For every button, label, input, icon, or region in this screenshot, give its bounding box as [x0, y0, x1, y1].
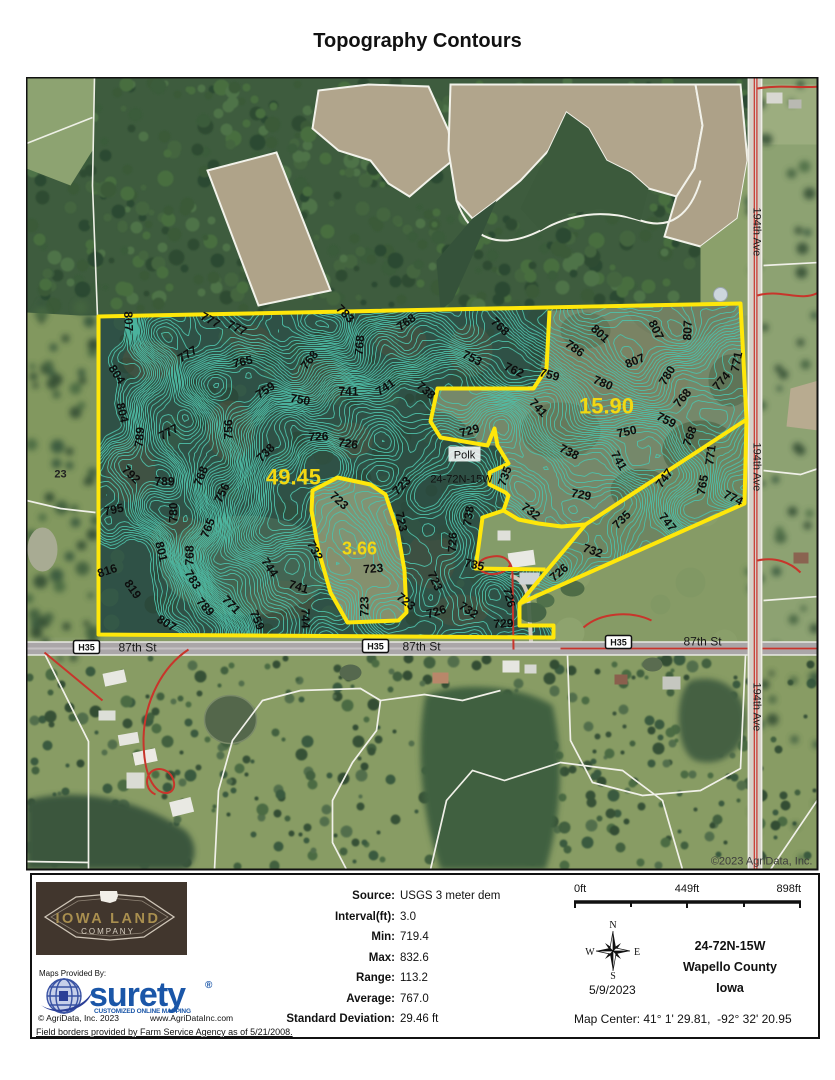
svg-text:771: 771	[702, 443, 718, 465]
svg-text:789: 789	[154, 474, 174, 488]
svg-text:726: 726	[337, 435, 359, 452]
svg-text:23: 23	[54, 468, 66, 480]
svg-text:H35: H35	[78, 642, 95, 652]
svg-text:789: 789	[131, 426, 147, 447]
svg-text:S: S	[610, 971, 616, 980]
svg-text:768: 768	[182, 544, 196, 565]
svg-text:744: 744	[298, 608, 312, 629]
svg-text:726: 726	[308, 429, 329, 444]
svg-text:729: 729	[493, 616, 514, 631]
svg-text:3.66: 3.66	[341, 538, 376, 558]
svg-text:0ft: 0ft	[574, 883, 586, 895]
svg-text:741: 741	[338, 384, 358, 398]
svg-text:194th Ave: 194th Ave	[750, 682, 762, 731]
svg-text:H35: H35	[367, 641, 384, 651]
svg-text:807: 807	[121, 311, 136, 332]
svg-text:W: W	[585, 947, 595, 958]
svg-text:723: 723	[362, 560, 383, 575]
svg-text:780: 780	[166, 502, 180, 522]
svg-text:24-72N-15W: 24-72N-15W	[430, 473, 493, 485]
svg-text:449ft: 449ft	[675, 883, 699, 895]
svg-text:N: N	[609, 920, 616, 931]
svg-text:H35: H35	[610, 637, 627, 647]
svg-text:Polk: Polk	[453, 449, 475, 461]
svg-text:807: 807	[680, 319, 695, 340]
svg-text:87th St: 87th St	[118, 640, 157, 654]
svg-text:194th Ave: 194th Ave	[750, 207, 762, 256]
svg-text:723: 723	[357, 596, 371, 616]
svg-text:194th Ave: 194th Ave	[750, 442, 762, 491]
svg-text:15.90: 15.90	[578, 393, 633, 418]
svg-text:898ft: 898ft	[777, 883, 801, 895]
svg-text:49.45: 49.45	[265, 464, 320, 489]
svg-text:E: E	[634, 947, 640, 958]
svg-text:IOWA LAND: IOWA LAND	[56, 911, 161, 927]
svg-text:87th St: 87th St	[683, 634, 722, 648]
svg-text:726: 726	[444, 531, 459, 552]
svg-text:87th St: 87th St	[402, 639, 441, 653]
svg-text:COMPANY: COMPANY	[81, 927, 135, 936]
svg-text:768: 768	[351, 334, 367, 355]
svg-text:756: 756	[221, 419, 235, 439]
svg-text:©2023 AgriData, Inc.: ©2023 AgriData, Inc.	[710, 855, 812, 867]
